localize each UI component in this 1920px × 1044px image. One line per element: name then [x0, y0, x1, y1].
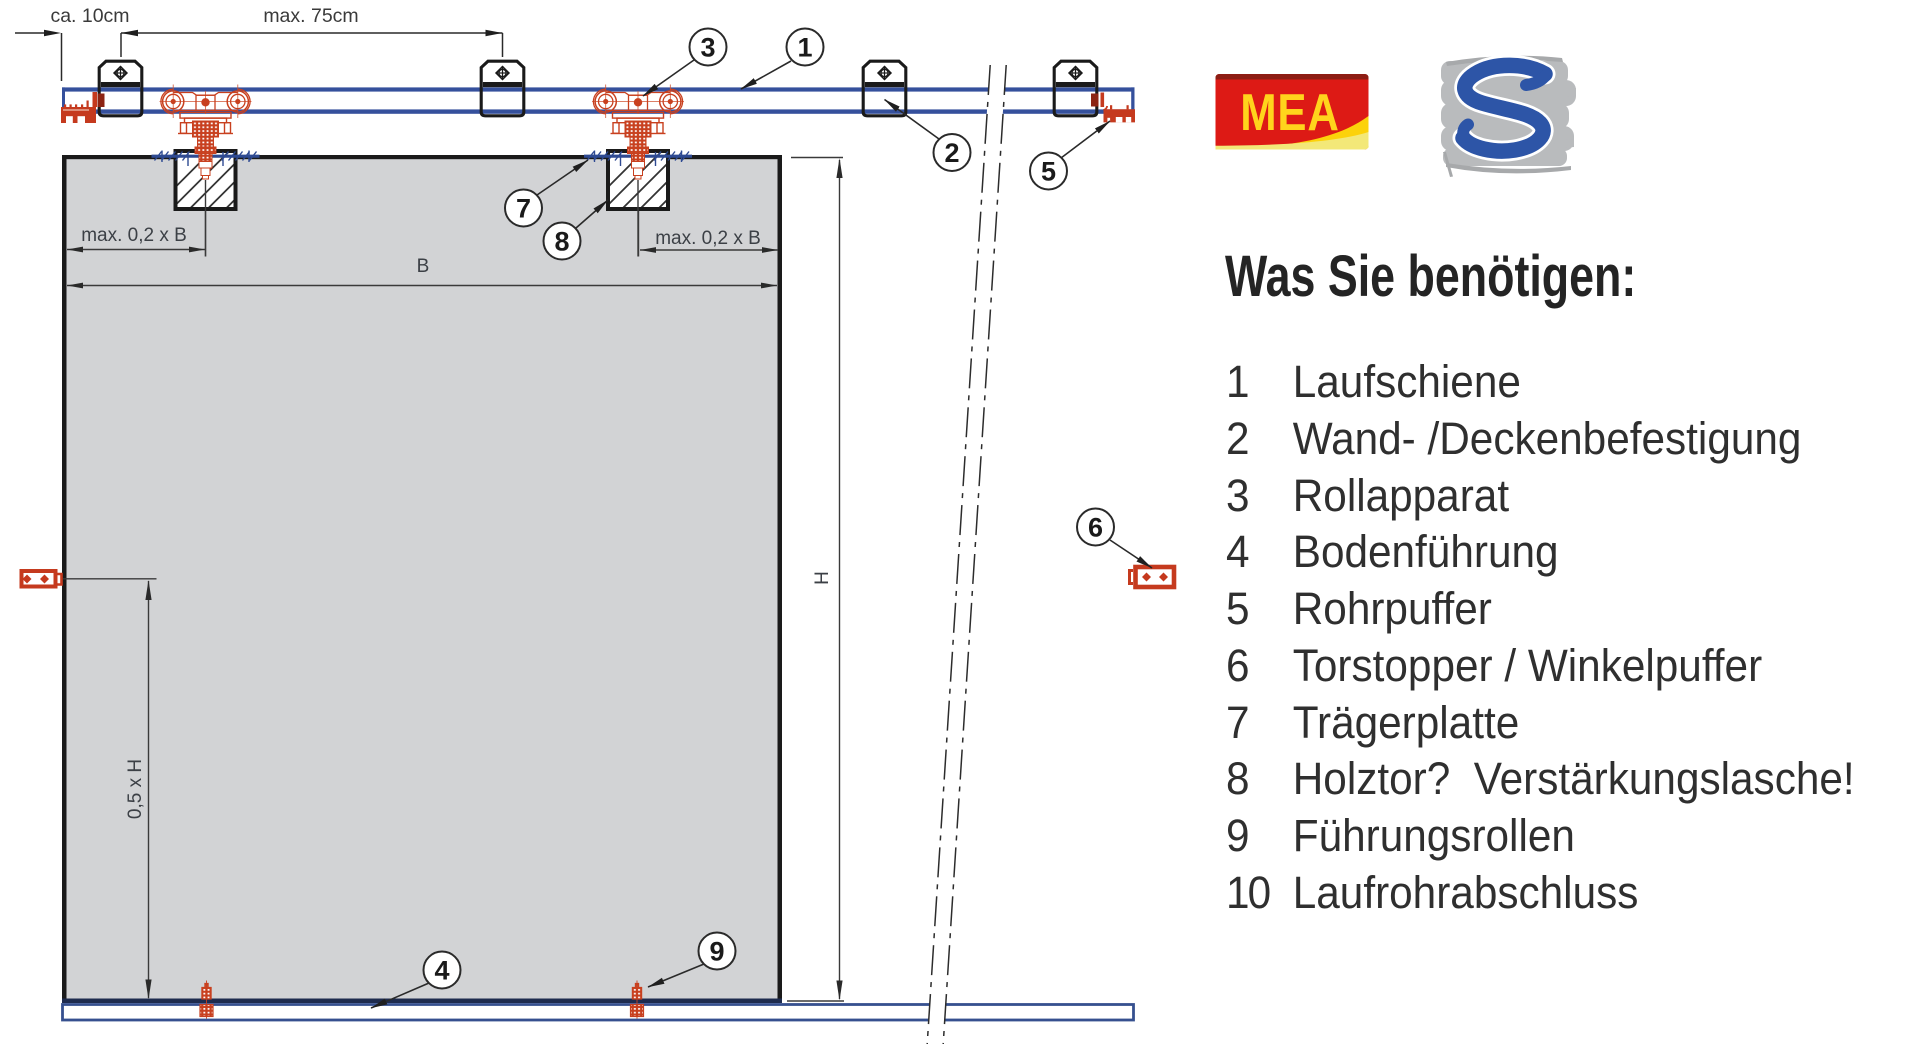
svg-text:6: 6 — [1088, 513, 1103, 543]
svg-text:H: H — [812, 571, 833, 585]
svg-text:1: 1 — [797, 33, 812, 63]
svg-text:9: 9 — [709, 937, 724, 967]
svg-text:MEA: MEA — [1240, 85, 1340, 142]
svg-text:max. 75cm: max. 75cm — [263, 5, 358, 27]
svg-text:max. 0,2 x B: max. 0,2 x B — [655, 228, 761, 249]
svg-text:3: 3 — [700, 33, 715, 63]
svg-text:B: B — [417, 256, 430, 277]
svg-text:7: 7 — [516, 194, 531, 224]
svg-text:max. 0,2 x B: max. 0,2 x B — [81, 225, 187, 246]
svg-text:8: 8 — [554, 227, 569, 257]
svg-text:2: 2 — [944, 138, 959, 168]
svg-text:4: 4 — [434, 956, 449, 986]
svg-text:0,5 x H: 0,5 x H — [125, 759, 146, 819]
svg-text:ca. 10cm: ca. 10cm — [50, 5, 129, 27]
svg-text:5: 5 — [1041, 157, 1056, 187]
